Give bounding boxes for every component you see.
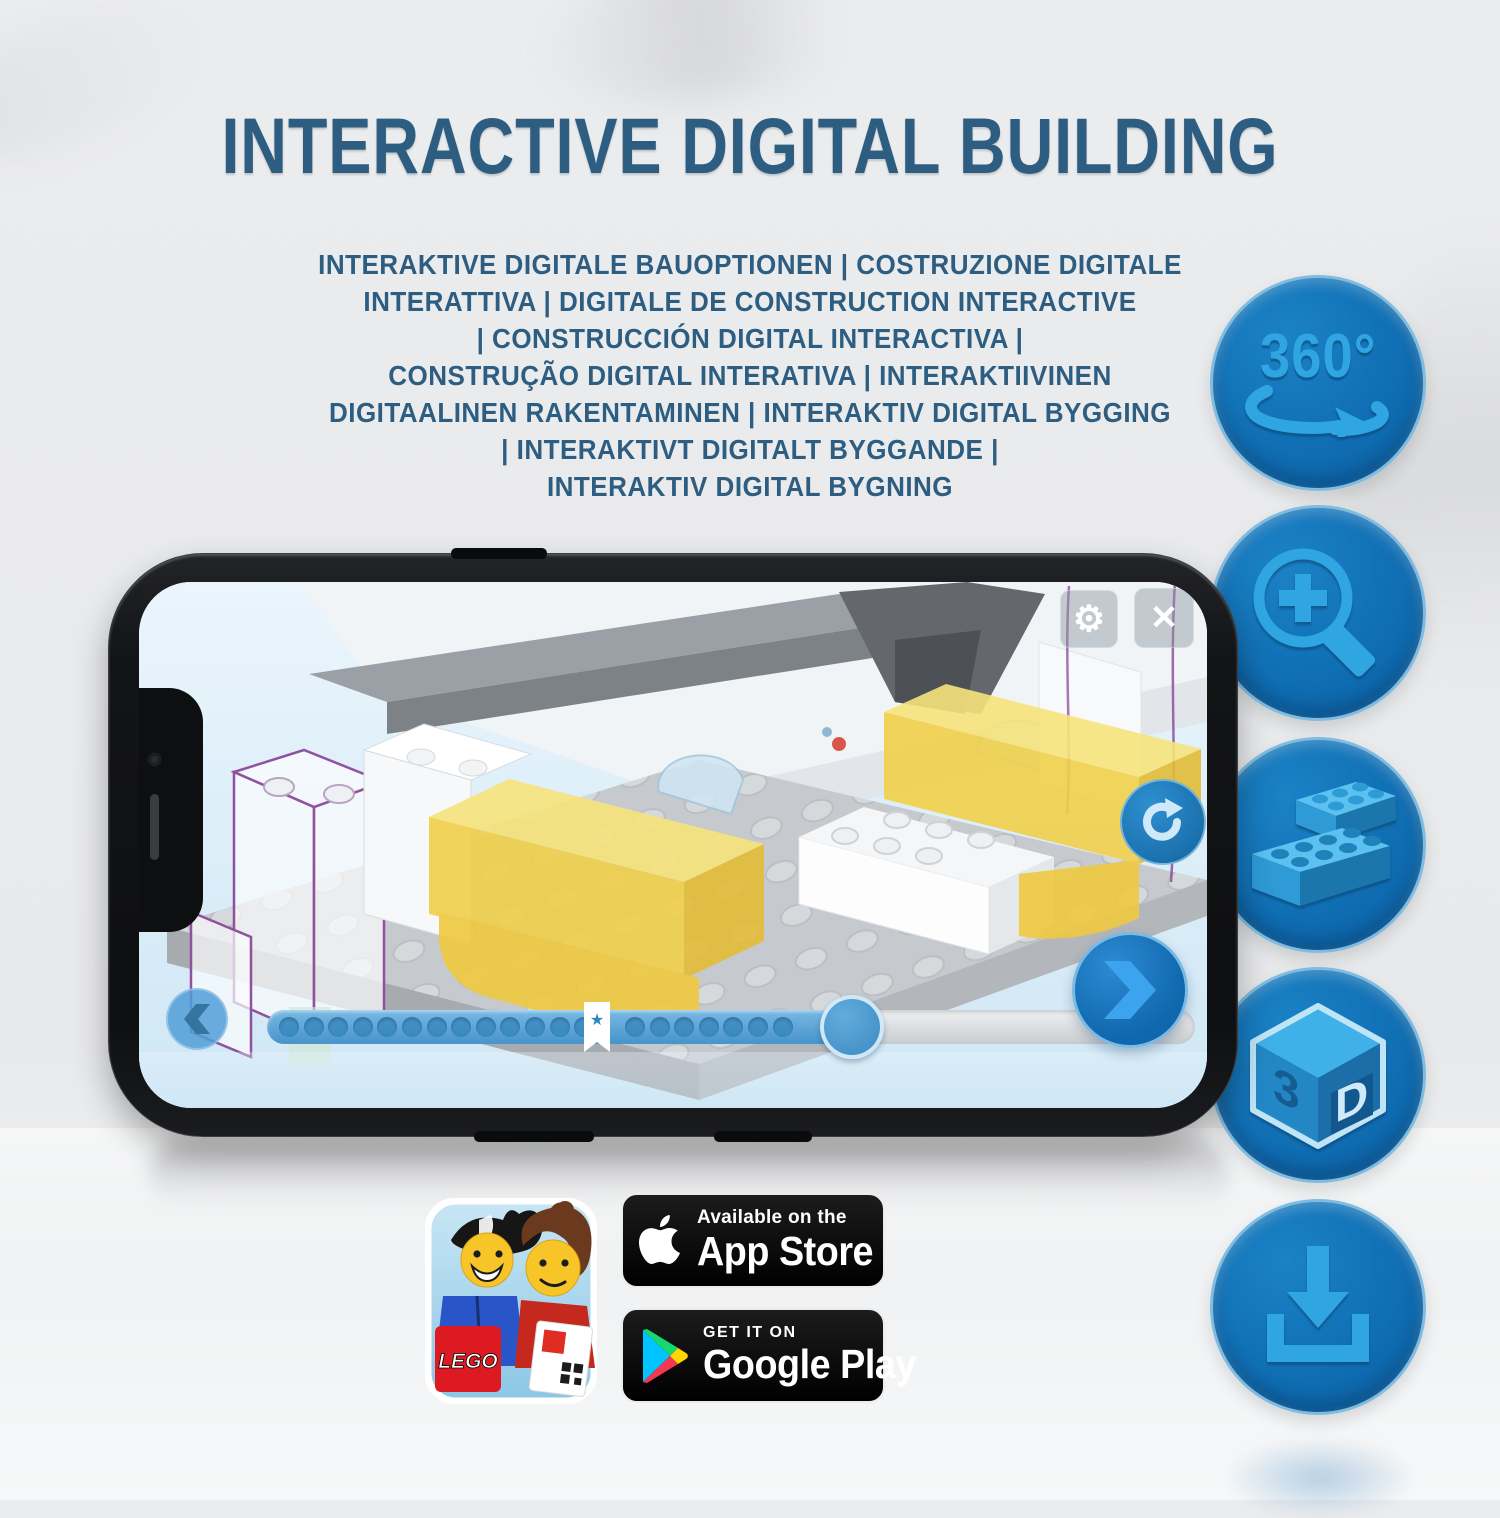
progress-dot — [402, 1017, 422, 1037]
google-play-icon — [639, 1328, 689, 1384]
app-store-badge[interactable]: Available on the App Store — [621, 1193, 885, 1288]
download-icon — [1243, 1232, 1393, 1382]
app-store-line2: App Store — [697, 1230, 873, 1273]
google-play-badge[interactable]: GET IT ON Google Play — [621, 1308, 885, 1403]
gear-icon: ⚙ — [1073, 598, 1105, 640]
rotate-view-button[interactable] — [1120, 779, 1206, 865]
subtitle-line: | INTERAKTIVT DIGITALT BYGGANDE | — [266, 431, 1233, 468]
close-button[interactable]: ✕ — [1134, 588, 1194, 648]
progress-dot — [279, 1017, 299, 1037]
subtitle-line: INTERAKTIV DIGITAL BYGNING — [266, 468, 1233, 505]
phone-notch — [139, 688, 203, 932]
volume-button — [714, 1131, 812, 1142]
build-progress-slider[interactable]: ★ — [267, 1010, 1195, 1044]
feature-circle-brick — [1210, 737, 1426, 953]
lego-app-icon[interactable]: LEGO — [425, 1198, 597, 1404]
progress-dot — [550, 1017, 570, 1037]
feature-circle-zoom — [1210, 505, 1426, 721]
settings-button[interactable]: ⚙ — [1060, 590, 1118, 648]
lego-brick-icon — [1238, 770, 1398, 920]
rotate-icon — [1137, 796, 1189, 848]
power-button — [451, 548, 547, 559]
zoom-in-icon — [1243, 538, 1393, 688]
progress-dot — [476, 1017, 496, 1037]
chevron-right-icon — [1104, 961, 1156, 1019]
progress-dot — [773, 1017, 793, 1037]
feature-circle-3d: 3 D — [1210, 967, 1426, 1183]
progress-dot — [625, 1017, 645, 1037]
subtitle-line: DIGITAALINEN RAKENTAMINEN | INTERAKTIV D… — [266, 394, 1233, 431]
close-icon: ✕ — [1150, 598, 1179, 638]
progress-dot — [748, 1017, 768, 1037]
rotate-360-icon: 360° — [1260, 329, 1376, 385]
page-title: INTERACTIVE DIGITAL BUILDING — [135, 100, 1365, 192]
slider-knob[interactable] — [820, 995, 884, 1059]
chevron-left-icon — [184, 1004, 210, 1034]
app-store-line1: Available on the — [697, 1208, 888, 1228]
progress-dot — [353, 1017, 373, 1037]
progress-dot — [427, 1017, 447, 1037]
subtitle-line: | CONSTRUCCIÓN DIGITAL INTERACTIVA | — [266, 320, 1233, 357]
previous-step-button[interactable] — [166, 988, 228, 1050]
app-screen: ⚙ ✕ ★ — [139, 582, 1207, 1108]
feature-circle-360: 360° — [1210, 275, 1426, 491]
rotate-arrow-icon — [1243, 385, 1393, 437]
multilingual-subtitle: INTERAKTIVE DIGITALE BAUOPTIONEN | COSTR… — [266, 246, 1233, 505]
subtitle-line: INTERATTIVA | DIGITALE DE CONSTRUCTION I… — [266, 283, 1233, 320]
apple-icon — [639, 1215, 683, 1267]
subtitle-line: INTERAKTIVE DIGITALE BAUOPTIONEN | COSTR… — [266, 246, 1233, 283]
feature-circle-download — [1210, 1199, 1426, 1415]
cube-3d-icon: 3 D — [1243, 1000, 1393, 1150]
volume-button — [474, 1131, 594, 1142]
progress-dot — [699, 1017, 719, 1037]
progress-dot — [650, 1017, 670, 1037]
progress-dot — [304, 1017, 324, 1037]
google-play-line1: GET IT ON — [703, 1325, 934, 1342]
lego-logo: LEGO — [438, 1350, 498, 1373]
google-play-line2: Google Play — [703, 1343, 916, 1386]
phone-mockup: ⚙ ✕ ★ — [108, 553, 1238, 1137]
subtitle-line: CONSTRUÇÃO DIGITAL INTERATIVA | INTERAKT… — [266, 357, 1233, 394]
speaker-grille — [150, 794, 159, 860]
icon-reflection — [1222, 1438, 1417, 1518]
next-step-button[interactable] — [1072, 932, 1188, 1048]
front-camera-icon — [149, 754, 160, 765]
progress-dot — [525, 1017, 545, 1037]
